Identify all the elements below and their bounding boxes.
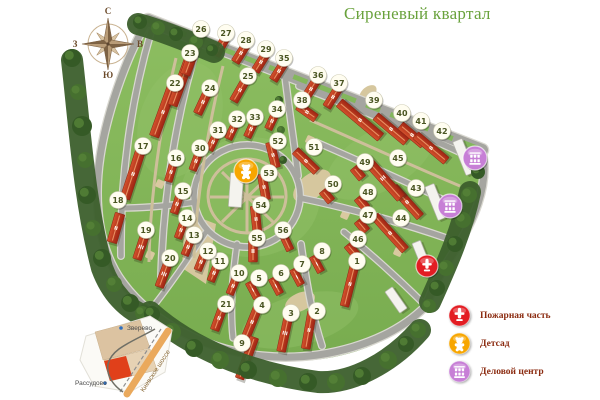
svg-text:23: 23 [184,49,195,58]
svg-text:28: 28 [240,36,252,45]
svg-text:1: 1 [354,257,360,266]
svg-text:33: 33 [249,113,260,122]
tree-highlight [355,369,364,378]
svg-text:30: 30 [194,144,206,153]
svg-text:54: 54 [255,201,267,210]
svg-text:16: 16 [170,154,182,163]
compass-label-n: С [105,6,112,16]
svg-text:10: 10 [233,269,245,278]
svg-text:25: 25 [242,72,254,81]
tree-highlight [170,28,177,35]
svg-text:8: 8 [319,247,325,256]
svg-text:13: 13 [188,231,199,240]
tree-highlight [95,251,104,260]
svg-text:31: 31 [212,126,224,135]
tree-highlight [440,262,448,270]
legend-item-kindergarten: Детсад [448,332,598,355]
tree-highlight [108,278,116,286]
svg-text:43: 43 [410,184,421,193]
svg-text:37: 37 [333,79,344,88]
tree-highlight [74,118,84,128]
svg-text:52: 52 [272,137,283,146]
svg-text:40: 40 [396,109,408,118]
floors-label: II [254,217,258,223]
svg-text:34: 34 [271,105,283,114]
svg-text:49: 49 [359,158,371,167]
business-center-icon [448,360,471,383]
svg-text:41: 41 [415,117,427,126]
tree-highlight [449,238,457,246]
svg-text:20: 20 [164,254,176,263]
svg-text:32: 32 [231,115,242,124]
tree-highlight [136,307,143,314]
tree-highlight [187,341,196,350]
svg-text:36: 36 [312,71,324,80]
legend-item-fire-station: Пожарная часть [448,304,598,327]
inset-town-label: Зверево [127,325,153,332]
tree-highlight [381,353,390,362]
tree-highlight [79,154,87,162]
compass-label-w: З [73,39,78,49]
tree-highlight [431,282,439,290]
floors-label: II [251,249,255,255]
legend: Пожарная часть Детсад Деловой центр [448,304,598,388]
svg-text:26: 26 [195,25,207,34]
svg-text:56: 56 [277,226,289,235]
svg-text:6: 6 [278,269,284,278]
legend-label: Пожарная часть [480,311,551,321]
svg-text:17: 17 [137,142,148,151]
location-inset: Киевское шоссеЗверевоРассудово [75,316,172,394]
svg-text:46: 46 [352,235,364,244]
legend-label: Деловой центр [480,367,544,377]
tree-highlight [134,16,141,23]
inset-town-dot [119,326,123,330]
svg-text:39: 39 [368,96,380,105]
tree-highlight [87,222,95,230]
legend-label: Детсад [480,339,510,349]
kindergarten-icon [448,332,471,355]
legend-item-business-center: Деловой центр [448,360,598,383]
tree-highlight [213,353,222,362]
tree-highlight [146,308,154,316]
svg-text:11: 11 [214,257,226,266]
svg-text:7: 7 [299,260,305,269]
compass-label-s: Ю [103,70,113,80]
svg-text:42: 42 [436,127,447,136]
svg-text:48: 48 [362,188,374,197]
svg-text:21: 21 [220,300,232,309]
svg-text:45: 45 [392,154,404,163]
tree-highlight [190,36,197,43]
tree-highlight [423,300,430,307]
svg-text:51: 51 [308,143,320,152]
tree-highlight [152,22,159,29]
svg-text:3: 3 [288,309,294,318]
svg-text:35: 35 [278,54,290,63]
inset-town-label: Рассудово [75,380,107,387]
tree-highlight [463,189,471,197]
svg-text:9: 9 [239,339,245,348]
svg-text:53: 53 [263,169,274,178]
tree-highlight [72,86,80,94]
tree-highlight [329,375,338,384]
tree-highlight [123,296,132,305]
svg-text:47: 47 [362,211,373,220]
svg-text:5: 5 [256,274,262,283]
svg-text:15: 15 [177,187,189,196]
svg-text:19: 19 [140,226,152,235]
tree-highlight [400,338,408,346]
svg-text:50: 50 [327,180,339,189]
tree-highlight [280,157,284,161]
svg-text:24: 24 [204,84,216,93]
svg-text:12: 12 [202,247,213,256]
svg-text:44: 44 [395,214,407,223]
tree-highlight [207,45,213,51]
tree-highlight [301,375,310,384]
tree-highlight [412,324,420,332]
tree-highlight [80,188,89,197]
svg-text:55: 55 [251,234,263,243]
svg-text:29: 29 [260,45,272,54]
site-plan-page: IIIIIIIIIIIIIIIIIIIIIIIIIIIIIIIIIIIIIIII… [0,0,600,400]
tree-highlight [271,371,280,380]
tree-highlight [241,363,250,372]
svg-text:2: 2 [314,307,320,316]
svg-text:14: 14 [181,214,193,223]
fire-station-icon [448,304,471,327]
svg-text:27: 27 [220,29,231,38]
compass-label-e: В [137,39,143,49]
page-title: Сиреневый квартал [344,4,491,24]
svg-text:18: 18 [112,196,124,205]
svg-text:38: 38 [296,96,308,105]
tree-highlight [276,97,280,101]
tree-highlight [278,127,282,131]
svg-text:4: 4 [259,301,265,310]
tree-highlight [65,51,74,60]
svg-text:22: 22 [169,79,180,88]
